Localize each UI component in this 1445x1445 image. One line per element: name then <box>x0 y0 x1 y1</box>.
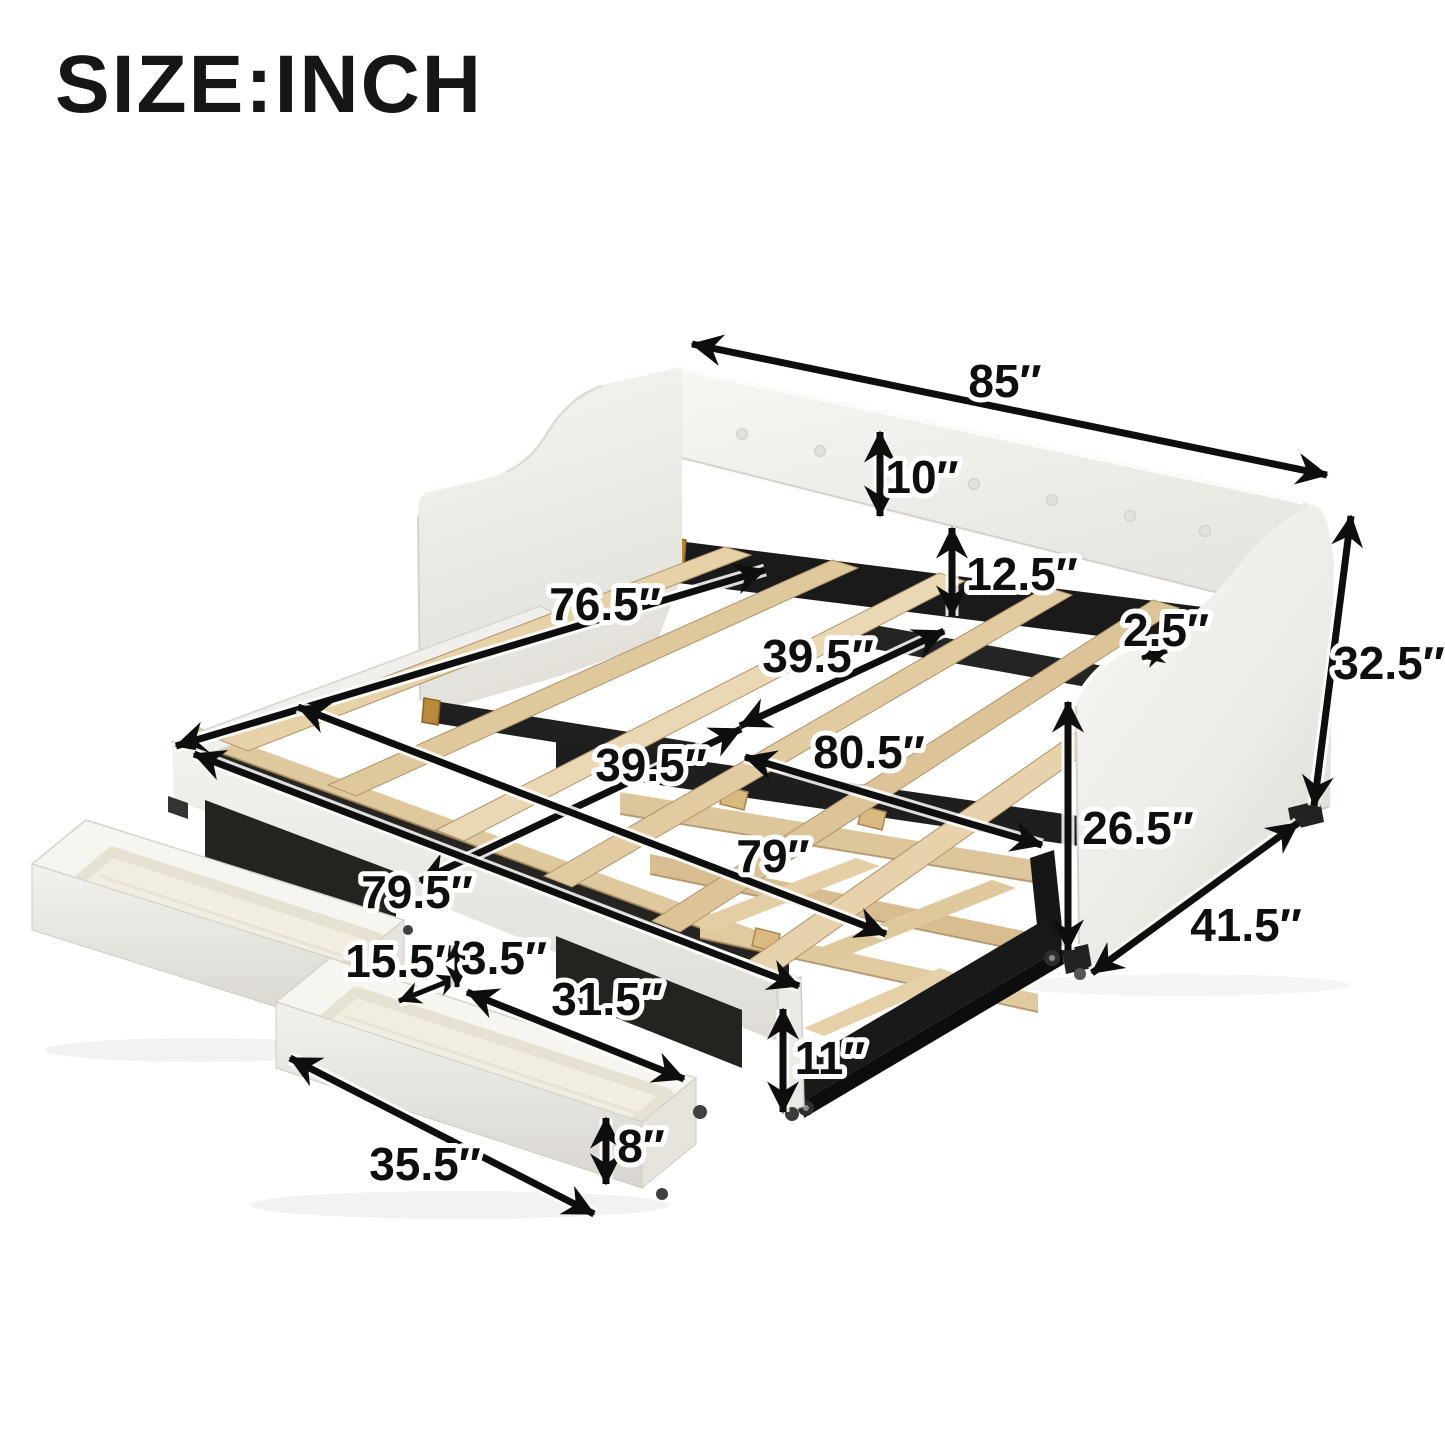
caster-wheel <box>656 1188 668 1200</box>
dim-label: 35.5″ <box>369 1138 481 1190</box>
dim-label: 8″ <box>617 1120 665 1172</box>
dim-label: 80.5″ <box>813 726 925 778</box>
dim-label: 79.5″ <box>361 866 473 918</box>
dim-label: 10″ <box>885 451 958 503</box>
dim-label: 79″ <box>736 830 809 882</box>
bed-shadow <box>1010 974 1350 996</box>
caster-wheel <box>693 1105 707 1119</box>
dimension-arm-thickness-2-5: 2.5″ <box>1123 604 1209 658</box>
hinge-hardware <box>422 698 440 725</box>
caster-wheel <box>403 925 413 935</box>
dim-label: 12.5″ <box>966 548 1078 600</box>
dim-label: 85″ <box>968 355 1041 407</box>
dim-label: 39.5″ <box>762 630 874 682</box>
dimension-drawer-gap-height-3-5: 3.5″ <box>457 932 547 987</box>
caster-wheel <box>1074 968 1086 980</box>
dim-label: 76.5″ <box>549 578 661 630</box>
daybed-dimension-diagram: SIZE:INCH <box>0 0 1445 1445</box>
dim-label: 41.5″ <box>1190 899 1302 951</box>
dim-label: 32.5″ <box>1333 637 1445 689</box>
dim-label: 3.5″ <box>461 932 547 984</box>
dim-label: 39.5″ <box>595 739 707 791</box>
drawer-shadow <box>250 1191 670 1219</box>
dim-label: 15.5″ <box>345 935 457 987</box>
page-title: SIZE:INCH <box>55 39 483 130</box>
dim-label: 11″ <box>795 1032 866 1084</box>
size-diagram-page: SIZE:INCH <box>0 0 1445 1445</box>
daybed-illustration <box>32 367 1350 1219</box>
dim-label: 2.5″ <box>1123 604 1209 656</box>
dim-label: 26.5″ <box>1082 802 1194 854</box>
dim-label: 31.5″ <box>551 973 663 1025</box>
